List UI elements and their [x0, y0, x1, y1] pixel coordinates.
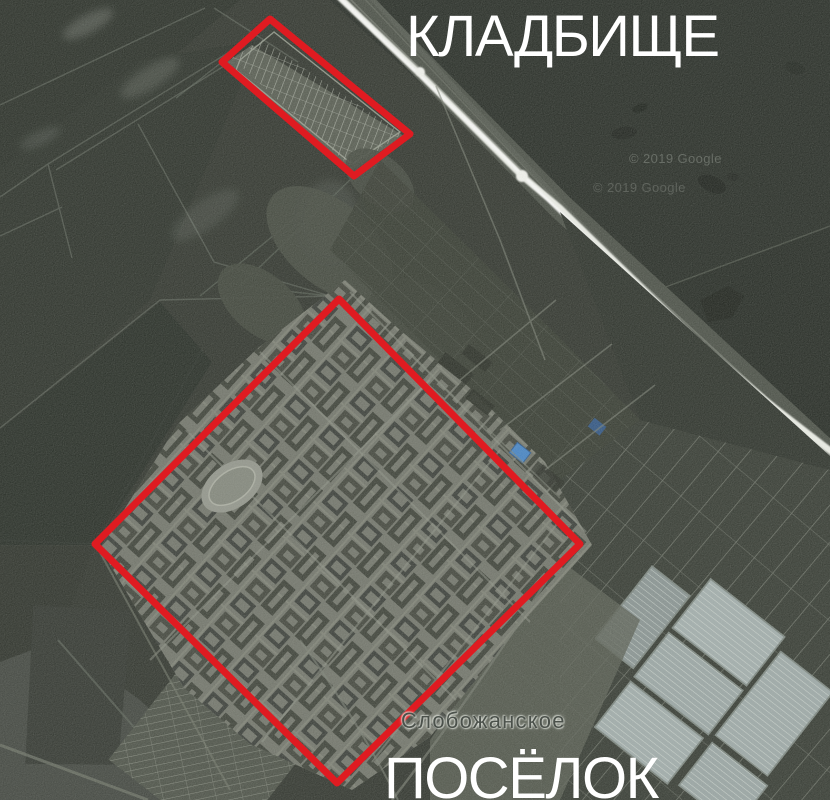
copyright-watermark-1: © 2019 Google: [629, 152, 722, 165]
satellite-image: [0, 0, 830, 800]
image-grain: [0, 0, 830, 800]
copyright-watermark-2: © 2019 Google: [593, 181, 686, 194]
annotated-satellite-map: КЛАДБИЩЕ ПОСЁЛОК Слобожанское © 2019 Goo…: [0, 0, 830, 800]
cemetery-label: КЛАДБИЩЕ: [406, 8, 719, 66]
place-name-label: Слобожанское: [401, 710, 566, 732]
settlement-label: ПОСЁЛОК: [384, 750, 658, 800]
